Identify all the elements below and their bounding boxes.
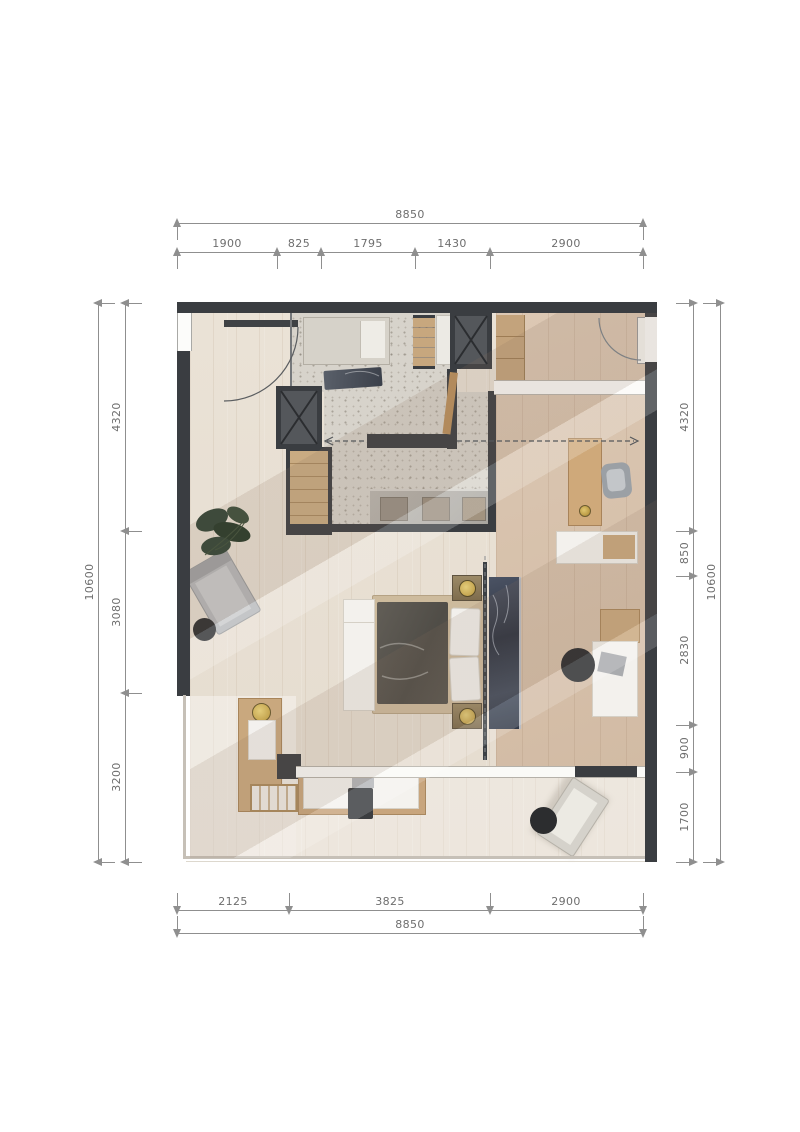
floorplan-canvas: 8850 1900 825 1795 1430 2900 2125 3825 2… <box>0 0 800 1132</box>
dim-label: 850 <box>679 542 691 564</box>
shaft-box <box>276 386 322 449</box>
bathroom-vanity <box>370 489 494 528</box>
desk-lamp <box>579 505 591 517</box>
dim-line-top-total <box>177 223 643 224</box>
console-pad <box>248 720 276 760</box>
study-console <box>556 531 638 564</box>
chair-cushion <box>606 468 626 492</box>
vanity-wood-shelf <box>600 609 640 643</box>
dim-label: 2900 <box>551 896 581 908</box>
wall-bathroom-east <box>488 391 496 532</box>
dim-label: 2900 <box>551 238 581 250</box>
kitchen-daybed <box>303 317 390 365</box>
wood-frame-chair <box>250 784 298 812</box>
window-west <box>177 313 192 351</box>
dim-line-left-segments <box>125 303 126 862</box>
dim-label: 825 <box>288 238 310 250</box>
dim-label: 2125 <box>218 896 248 908</box>
dim-line-right-segments <box>693 303 694 862</box>
bed-pillow <box>449 656 481 702</box>
dim-line-right-total <box>720 303 721 862</box>
nightstand <box>452 575 482 601</box>
bed-pillow <box>449 607 481 656</box>
vanity-cabinet <box>592 641 638 717</box>
dim-label: 1795 <box>353 238 383 250</box>
bed-bench <box>343 599 375 711</box>
sink-basin <box>422 497 450 521</box>
dim-label-right-total: 10600 <box>706 564 718 601</box>
dim-label: 3200 <box>111 762 123 792</box>
dim-label: 3825 <box>375 896 405 908</box>
vanity-stool <box>561 648 595 682</box>
wall-bathroom-south <box>286 524 494 532</box>
study-chair <box>600 462 632 500</box>
window-wall-south <box>296 766 645 778</box>
kitchen-tall-cabinet <box>413 315 435 369</box>
dim-line-top-segments <box>177 252 643 253</box>
balcony-table-round <box>530 807 557 834</box>
dark-chair <box>348 788 373 819</box>
sink-basin <box>380 497 408 521</box>
nightstand-lamp <box>459 580 476 597</box>
shaft-box <box>450 311 492 369</box>
console-tray <box>603 535 635 559</box>
wardrobe-shelves <box>286 447 332 535</box>
dim-label: 1430 <box>437 238 467 250</box>
daybed-cushion <box>360 321 385 358</box>
dim-line-left-total <box>98 303 99 862</box>
nightstand-lamp <box>459 708 476 725</box>
kitchen-marble-counter <box>323 367 382 390</box>
headboard-rail <box>483 562 487 760</box>
dim-line-bottom-total <box>177 933 643 934</box>
study-desk <box>568 438 602 526</box>
dim-label: 4320 <box>111 402 123 432</box>
dim-label: 3080 <box>111 597 123 627</box>
sliding-glass-partition <box>494 380 645 395</box>
headboard-marble-panel <box>489 577 521 729</box>
wall-bathroom-stub <box>367 434 449 448</box>
dim-label: 1700 <box>679 802 691 832</box>
wall-east <box>645 362 657 862</box>
entry-door-leaf <box>224 320 298 327</box>
bench-seam <box>344 622 374 623</box>
dim-label-top-total: 8850 <box>395 209 425 221</box>
vanity-mirror <box>597 652 627 677</box>
side-table-round <box>193 618 216 641</box>
dim-label: 1900 <box>212 238 242 250</box>
door-opening-east <box>645 317 657 362</box>
terrace-rail-inner <box>186 861 645 862</box>
dim-label-left-total: 10600 <box>84 564 96 601</box>
dim-label: 900 <box>679 737 691 759</box>
dim-label-bottom-total: 8850 <box>395 919 425 931</box>
foyer-closet <box>496 315 525 383</box>
entry-glass-partition <box>290 313 292 388</box>
wall-west <box>177 351 190 696</box>
terrace-rail-west <box>183 695 186 859</box>
terrace-rail-south <box>183 856 645 859</box>
dim-label: 4320 <box>679 402 691 432</box>
bed-duvet <box>377 602 448 704</box>
dim-line-bottom-segments <box>177 910 643 911</box>
wall-north <box>177 302 657 313</box>
nightstand <box>452 703 482 729</box>
sink-basin <box>462 497 486 521</box>
dim-label: 2830 <box>679 635 691 665</box>
sliding-door-panel <box>575 766 637 777</box>
